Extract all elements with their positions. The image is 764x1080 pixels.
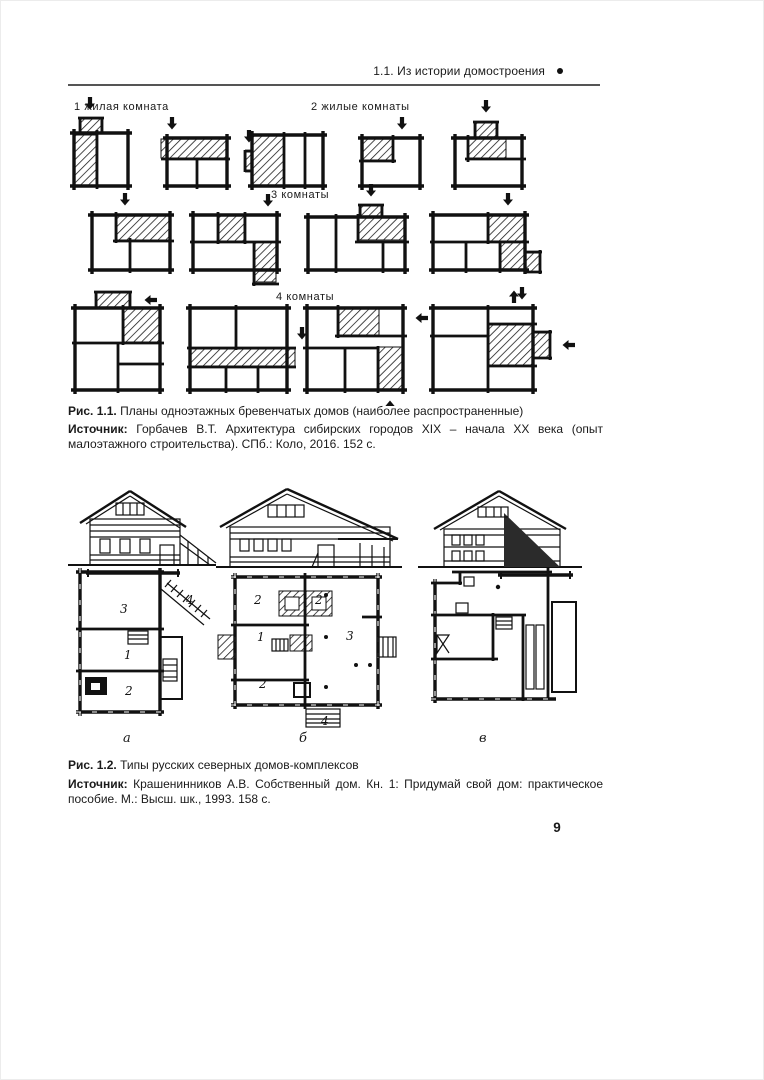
plan-1room-a (70, 97, 132, 190)
house-elevation-a (68, 491, 216, 577)
running-head: 1.1. Из истории домостроения (68, 64, 600, 78)
fig1-caption: Рис. 1.1. Планы одноэтажных бревенчатых … (68, 404, 603, 418)
house-plan-b: 2 2 1 3 2 4 (218, 573, 396, 728)
plan-2rooms-a (244, 130, 327, 190)
plan-3rooms-d (429, 193, 542, 303)
room-number: 2 (253, 593, 262, 607)
fig1-plans-drawing (68, 96, 608, 406)
fig1-source: Источник: Горбачев В.Т. Архитектура сиби… (68, 422, 603, 452)
fig2-caption: Рис. 1.2. Типы русских северных домов-ко… (68, 758, 603, 772)
room-number: 1 (257, 630, 265, 644)
plan-4rooms-b (186, 304, 307, 394)
room-number: 1 (124, 648, 132, 662)
room-number: 4 (185, 593, 194, 607)
plan-2rooms-b (358, 117, 424, 190)
plan-4rooms-a (71, 292, 164, 394)
fig2-caption-label: Рис. 1.2. (68, 758, 117, 772)
book-page: 1.1. Из истории домостроения 1 жилая ком… (0, 0, 764, 1080)
plan-3rooms-a (88, 193, 174, 274)
header-rule (68, 84, 600, 86)
room-number: 3 (346, 629, 354, 643)
page-number: 9 (548, 820, 566, 835)
fig2-houses-drawing: 3 4 1 2 (68, 487, 608, 750)
house-plan-a: 3 4 1 2 (76, 568, 210, 716)
room-number: 2 (258, 677, 267, 691)
fig2-panel-label-a: а (123, 731, 131, 746)
plan-4rooms-d (429, 287, 575, 394)
fig2-source: Источник: Крашенинников А.В. Собственный… (68, 777, 603, 807)
room-number: 2 (124, 684, 133, 698)
fig2-caption-text: Типы русских северных домов-комплексов (120, 758, 359, 772)
fig1-caption-label: Рис. 1.1. (68, 404, 117, 418)
fig2-source-label: Источник: (68, 777, 128, 791)
fig2-panel-label-v: в (479, 731, 487, 746)
room-number: 4 (320, 714, 329, 728)
fig1-source-text: Горбачев В.Т. Архитектура сибирских горо… (68, 422, 603, 451)
fig1-caption-text: Планы одноэтажных бревенчатых домов (наи… (120, 404, 523, 418)
room-number: 3 (120, 602, 128, 616)
plan-1room-b (161, 117, 231, 190)
fig2-panel-label-b: б (299, 731, 307, 746)
plan-3rooms-b (189, 194, 281, 286)
fig1-source-label: Источник: (68, 422, 128, 436)
fig2-source-text: Крашенинников А.В. Собственный дом. Кн. … (68, 777, 603, 806)
running-head-title: 1.1. Из истории домостроения (373, 64, 545, 78)
house-plan-v (431, 568, 576, 703)
header-bullet-icon (557, 68, 563, 74)
plan-2rooms-c (451, 100, 526, 190)
plan-4rooms-c (303, 304, 428, 406)
plan-3rooms-c (304, 184, 409, 274)
house-elevation-b (216, 489, 402, 567)
room-number: 2 (314, 593, 323, 607)
house-elevation-v (418, 491, 582, 579)
